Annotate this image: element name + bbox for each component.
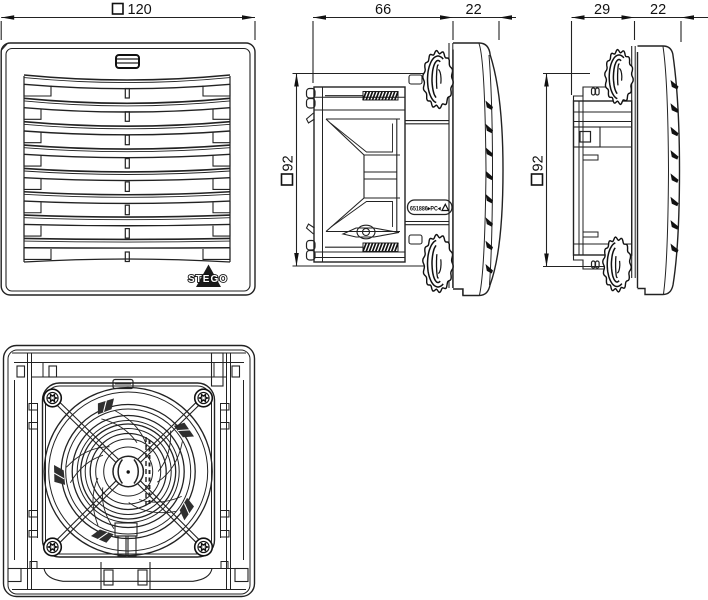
svg-text:92: 92	[281, 155, 297, 171]
svg-text:120: 120	[128, 2, 152, 18]
svg-text:22: 22	[650, 2, 666, 18]
svg-text:651886▸PC◂: 651886▸PC◂	[410, 205, 441, 212]
svg-text:STEGO: STEGO	[188, 274, 228, 285]
svg-text:22: 22	[466, 2, 482, 18]
svg-text:66: 66	[375, 2, 391, 18]
svg-text:29: 29	[594, 2, 610, 18]
svg-text:92: 92	[531, 155, 547, 171]
